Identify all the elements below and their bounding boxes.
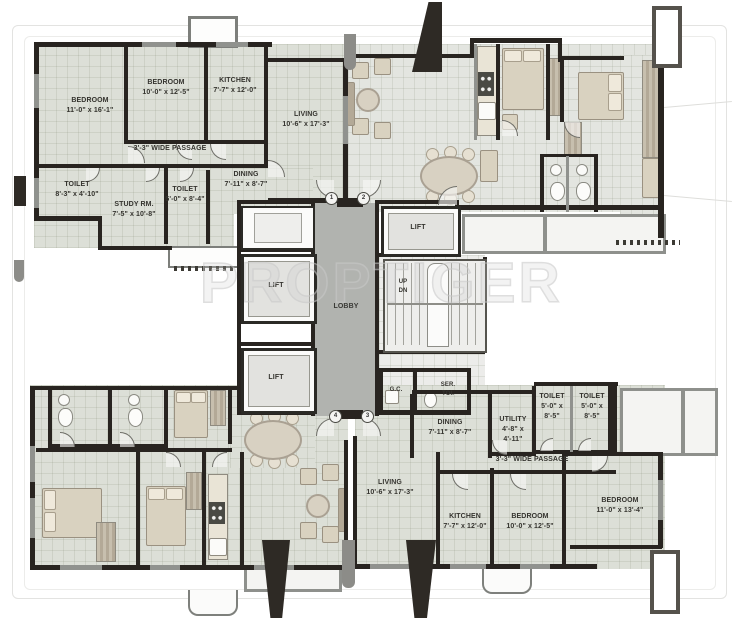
wall bbox=[658, 52, 664, 238]
wardrobe-icon bbox=[96, 522, 116, 562]
sofa-icon bbox=[300, 522, 317, 539]
room-label-bedroom: BEDROOM 11'-0" x 16'-1" bbox=[48, 96, 132, 116]
wall bbox=[474, 44, 477, 140]
door-number: 2 bbox=[357, 192, 370, 205]
lift-shaft bbox=[241, 206, 315, 250]
structural-fin bbox=[406, 540, 436, 618]
lift-label: LIFT bbox=[388, 223, 448, 233]
wall bbox=[98, 246, 172, 250]
wall bbox=[562, 452, 566, 568]
wall bbox=[496, 44, 500, 140]
wall bbox=[108, 390, 112, 448]
column bbox=[650, 550, 680, 614]
wc-icon bbox=[58, 408, 73, 427]
wall bbox=[560, 56, 564, 122]
room-label-utility: UTILITY 4'-8" x 4'-11" bbox=[492, 415, 534, 445]
ledge-dots bbox=[616, 240, 680, 245]
room-label-dining: DINING 7'-11" x 8'-7" bbox=[208, 170, 284, 190]
basin-icon bbox=[58, 394, 70, 406]
stove-icon bbox=[209, 502, 225, 524]
sofa-icon bbox=[300, 468, 317, 485]
pillow-icon bbox=[504, 50, 522, 62]
room-label-bedroom: BEDROOM 10'-0" x 12'-5" bbox=[490, 512, 570, 532]
coffee-table-icon bbox=[306, 494, 330, 518]
room-label-study: STUDY RM. 7'-5" x 10'-8" bbox=[108, 200, 160, 220]
room-label-toilet: TOILET 5'-0" x 8'-5" bbox=[533, 392, 571, 422]
wall bbox=[470, 38, 562, 43]
pillow-icon bbox=[148, 488, 165, 500]
room-label-living: LIVING 10'-6" x 17'-3" bbox=[268, 110, 344, 130]
floor-plan: BEDROOM 11'-0" x 16'-1" BEDROOM 10'-0" x… bbox=[0, 0, 739, 620]
sofa-icon bbox=[322, 464, 339, 481]
structural-fin bbox=[14, 176, 26, 206]
column bbox=[652, 6, 682, 68]
room-label-toilet: TOILET 5'-0" x 8'-5" bbox=[573, 392, 611, 422]
deck bbox=[544, 214, 666, 254]
room-label-toilet: TOILET 8'-3" x 4'-10" bbox=[40, 180, 114, 200]
coffee-table-icon bbox=[356, 88, 380, 112]
lift-label: LIFT bbox=[246, 373, 306, 383]
pillow-icon bbox=[44, 512, 56, 532]
wall bbox=[136, 452, 140, 566]
wardrobe-icon bbox=[210, 390, 226, 426]
wardrobe-icon bbox=[186, 472, 202, 510]
room-label-living: LIVING 10'-6" x 17'-3" bbox=[352, 478, 428, 498]
door-number: 1 bbox=[325, 192, 338, 205]
room-label-toilet: TOILET 5'-0" x 8'-4" bbox=[165, 185, 205, 205]
wall bbox=[570, 545, 662, 549]
service-toilet-label: SER. TOI. bbox=[432, 381, 464, 398]
garbage-chute-label: G.C. bbox=[382, 386, 410, 395]
window bbox=[142, 42, 176, 47]
room-label-passage: 3'-3" WIDE PASSAGE bbox=[462, 455, 602, 465]
cabinet-icon bbox=[480, 150, 498, 182]
wall bbox=[558, 56, 624, 60]
pillow-icon bbox=[608, 93, 622, 111]
pillow-icon bbox=[523, 50, 541, 62]
window bbox=[450, 564, 486, 569]
sofa-icon bbox=[374, 58, 391, 75]
wall bbox=[540, 154, 598, 157]
pillow-icon bbox=[608, 74, 622, 92]
watermark: PROPTIGER bbox=[200, 250, 563, 316]
wc-icon bbox=[550, 182, 565, 201]
pillow-icon bbox=[166, 488, 183, 500]
wall bbox=[202, 452, 206, 566]
pillow-icon bbox=[176, 392, 191, 403]
wall bbox=[264, 46, 268, 166]
sofa-icon bbox=[322, 526, 339, 543]
wall bbox=[348, 54, 474, 58]
deck bbox=[620, 388, 684, 456]
wall bbox=[436, 452, 440, 568]
deck bbox=[462, 214, 546, 254]
pillow-icon bbox=[191, 392, 206, 403]
wall bbox=[612, 382, 617, 454]
window bbox=[30, 446, 35, 482]
room-label-bedroom: BEDROOM 11'-0" x 13'-4" bbox=[580, 496, 660, 516]
room-label-bedroom: BEDROOM 10'-0" x 12'-5" bbox=[126, 78, 206, 98]
wall bbox=[240, 452, 244, 566]
window bbox=[34, 74, 39, 108]
structural-post bbox=[342, 540, 355, 588]
basin-icon bbox=[128, 394, 140, 406]
sink-icon bbox=[478, 102, 496, 120]
wall bbox=[48, 390, 52, 448]
balcony-rail bbox=[188, 590, 238, 616]
deck bbox=[682, 388, 718, 456]
wall bbox=[594, 156, 598, 212]
wall bbox=[458, 205, 664, 210]
wall bbox=[546, 44, 550, 140]
wc-icon bbox=[576, 182, 591, 201]
sofa-icon bbox=[374, 122, 391, 139]
wall bbox=[379, 368, 471, 372]
wall bbox=[540, 156, 544, 212]
wall bbox=[566, 156, 569, 212]
room-label-kitchen: KITCHEN 7'-7" x 12'-0" bbox=[200, 76, 270, 96]
basin-icon bbox=[550, 164, 562, 176]
wall bbox=[412, 390, 536, 394]
door-number: 4 bbox=[329, 410, 342, 423]
wc-icon bbox=[128, 408, 143, 427]
structural-post bbox=[344, 34, 356, 70]
room-label-passage: 3'-3" WIDE PASSAGE bbox=[100, 144, 240, 154]
wall bbox=[264, 58, 348, 62]
door-number: 3 bbox=[361, 410, 374, 423]
lift-shaft-inner bbox=[254, 213, 302, 243]
room-label-dining: DINING 7'-11" x 8'-7" bbox=[412, 418, 488, 438]
wall bbox=[98, 216, 102, 250]
window bbox=[60, 565, 102, 570]
structural-fin bbox=[262, 540, 290, 618]
wall bbox=[164, 168, 168, 244]
window bbox=[370, 564, 410, 569]
stove-icon bbox=[478, 72, 494, 96]
window bbox=[520, 564, 550, 569]
wall bbox=[237, 200, 315, 204]
tv-unit-icon bbox=[347, 82, 355, 126]
basin-icon bbox=[576, 164, 588, 176]
wall bbox=[534, 382, 618, 386]
window bbox=[216, 42, 248, 47]
window bbox=[150, 565, 180, 570]
balcony-rail bbox=[482, 568, 532, 594]
pillow-icon bbox=[44, 490, 56, 510]
wall bbox=[379, 410, 471, 415]
wall bbox=[237, 342, 311, 346]
wall bbox=[34, 216, 102, 221]
dining-table-icon bbox=[244, 420, 302, 460]
window bbox=[34, 178, 39, 208]
structural-post bbox=[14, 260, 24, 282]
sink-icon bbox=[209, 538, 227, 556]
wall bbox=[164, 390, 168, 448]
window bbox=[30, 498, 35, 538]
wall bbox=[228, 386, 232, 444]
